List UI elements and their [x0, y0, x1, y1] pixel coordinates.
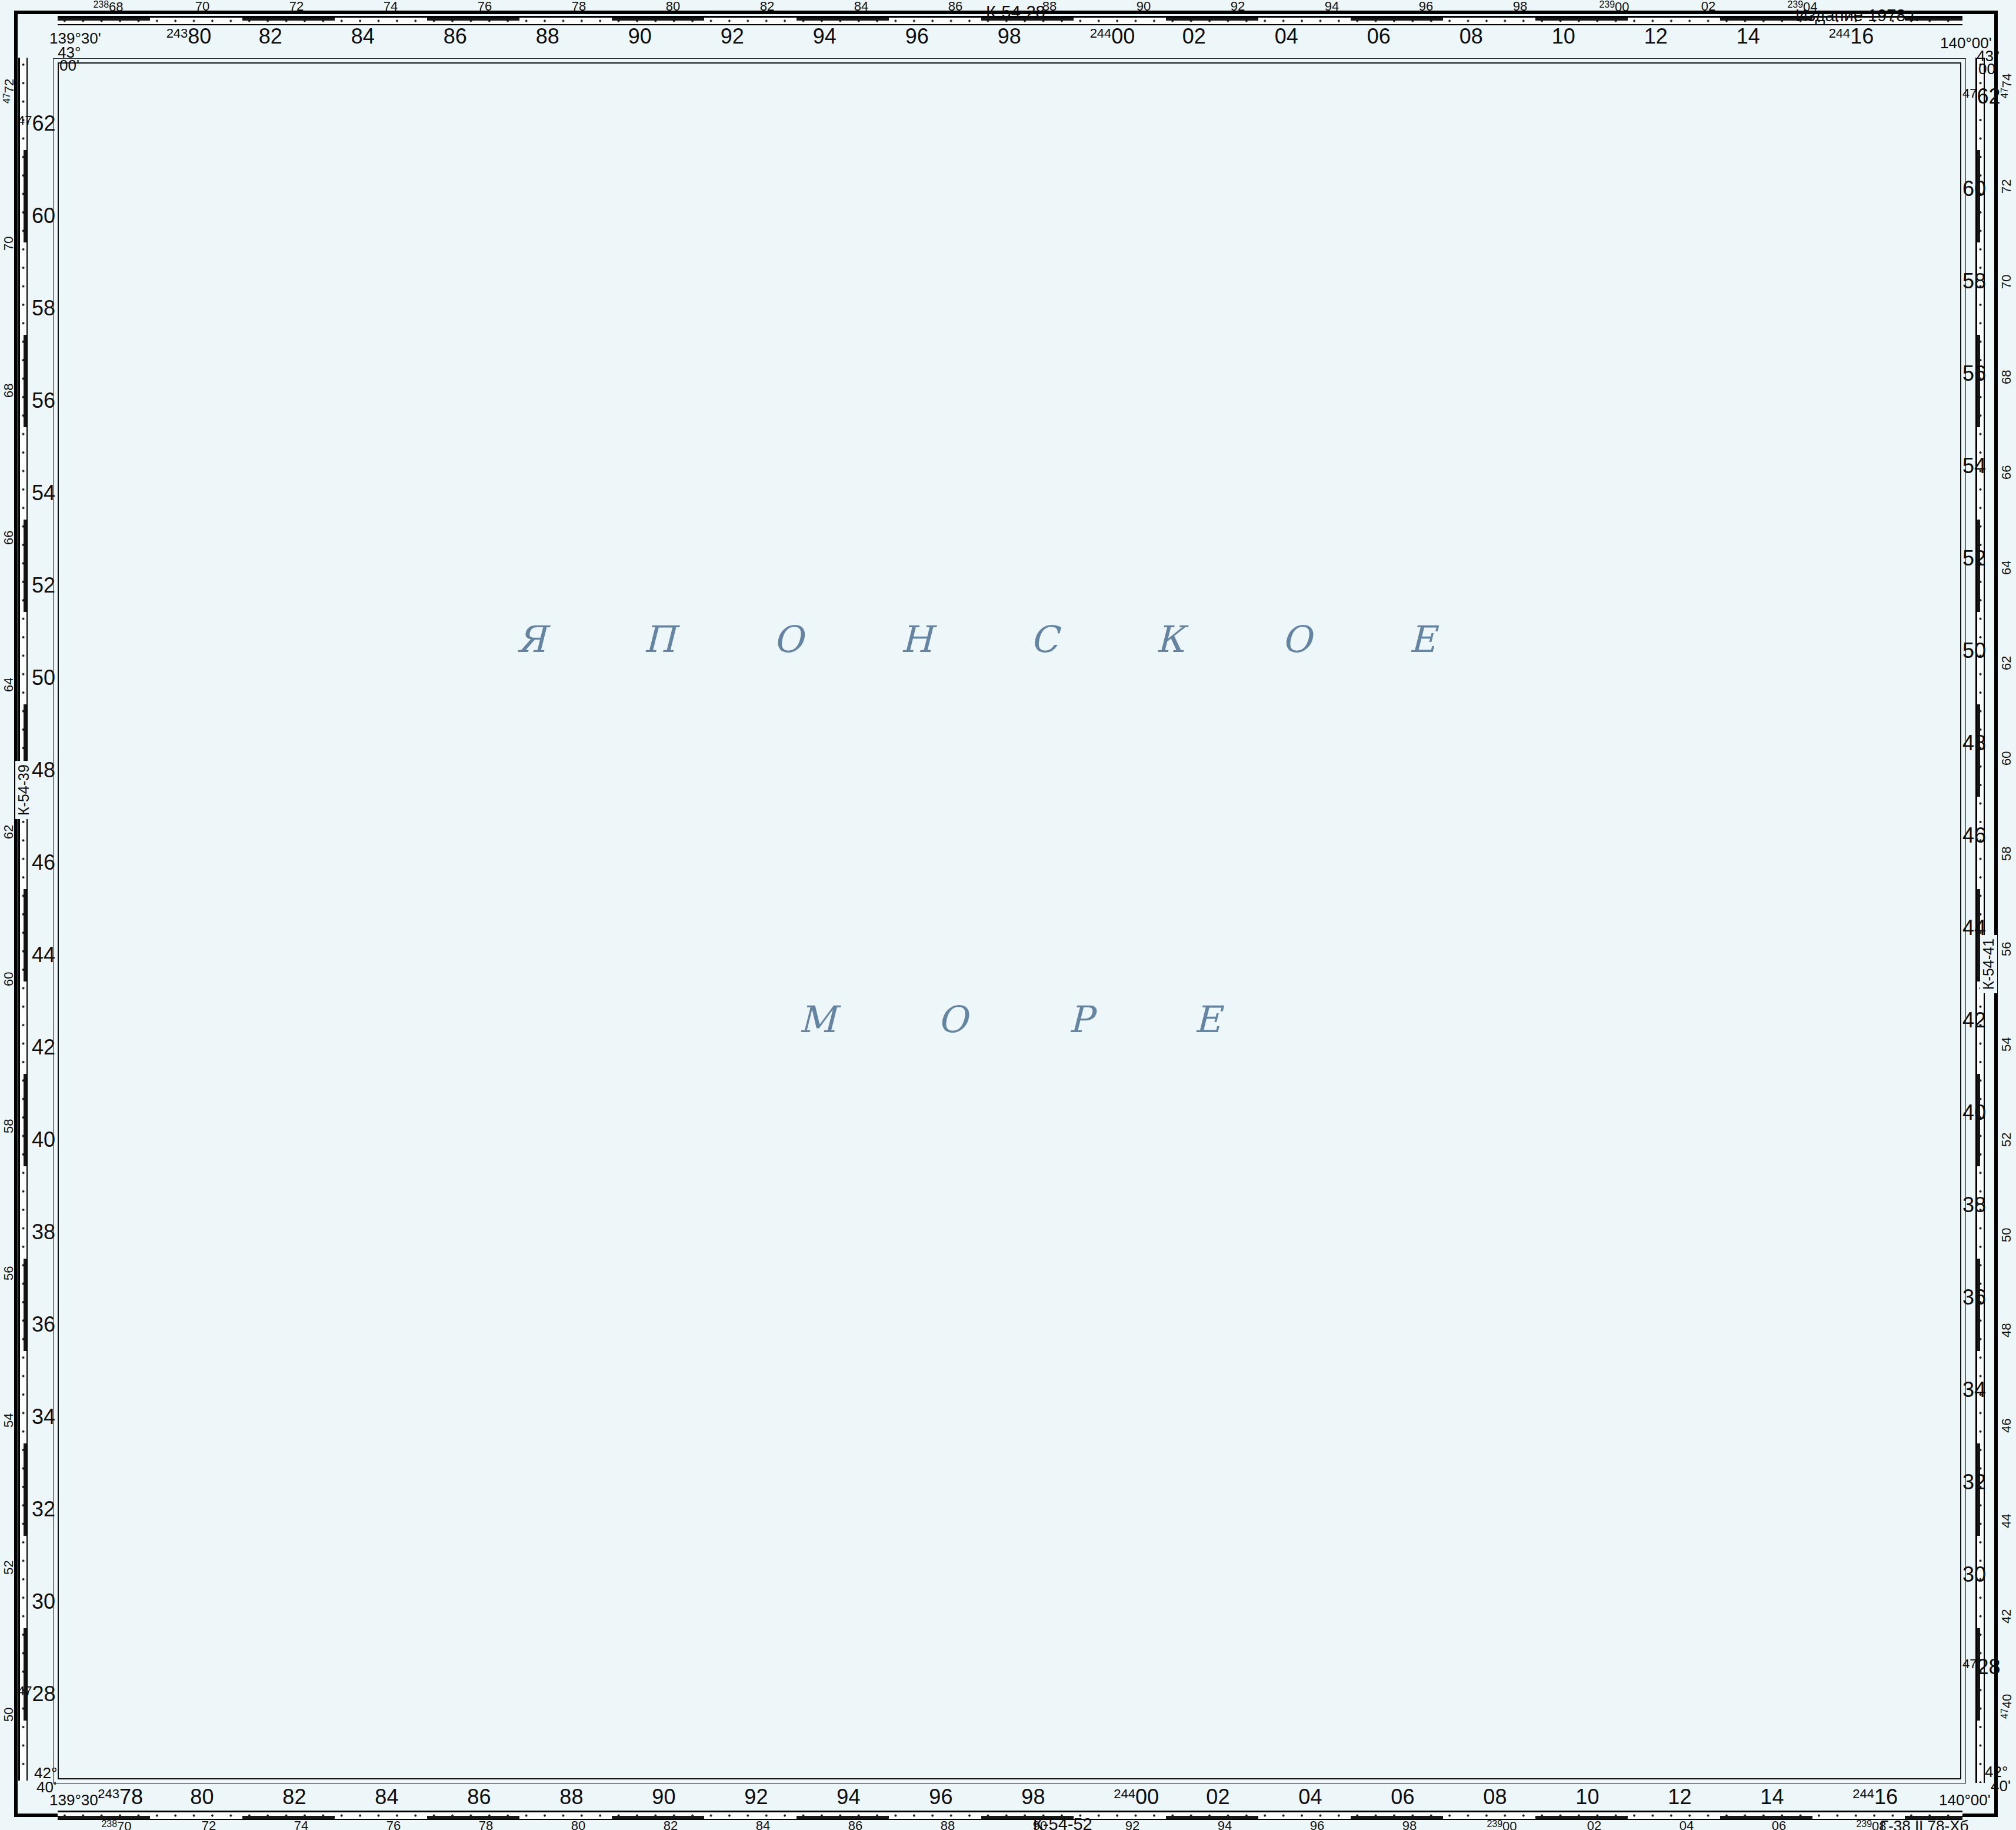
grid-label-top: 98: [998, 26, 1021, 47]
grid-label-bottom: 86: [467, 1786, 491, 1808]
outer-scale-top: 76: [478, 0, 492, 13]
grid-label-bottom: 98: [1021, 1786, 1045, 1808]
grid-label-bottom: 24400: [1114, 1786, 1159, 1808]
outer-scale-top: 70: [195, 0, 209, 13]
outer-scale-left: 50: [2, 1708, 15, 1722]
grid-label-right: 34: [1962, 1379, 1986, 1400]
outer-scale-bottom: 94: [1218, 1819, 1232, 1830]
outer-scale-left: 70: [2, 237, 15, 251]
grid-label-left: 36: [18, 1314, 55, 1335]
grid-label-left: 54: [18, 483, 55, 504]
outer-scale-top: 84: [854, 0, 868, 13]
grid-label-left: 52: [18, 575, 55, 596]
outer-scale-bottom: 02: [1587, 1819, 1601, 1830]
grid-label-bottom: 12: [1668, 1786, 1691, 1808]
grid-label-bottom: 02: [1206, 1786, 1229, 1808]
grid-label-top: 90: [628, 26, 652, 47]
outer-scale-left: 60: [2, 972, 15, 986]
grid-label-bottom: 82: [282, 1786, 306, 1808]
outer-scale-bottom: 86: [848, 1819, 862, 1830]
outer-scale-right: 68: [2000, 370, 2013, 384]
outer-scale-bottom: 88: [941, 1819, 955, 1830]
outer-scale-top: 96: [1419, 0, 1433, 13]
grid-label-right: 36: [1962, 1287, 1986, 1308]
outer-scale-right: 4740: [2000, 1694, 2014, 1719]
grid-label-right: 4728: [1962, 1656, 2001, 1678]
outer-scale-bottom: 90: [1033, 1819, 1047, 1830]
grid-label-left: 60: [18, 205, 55, 227]
topographic-map-sheet: Издание 1978 г. К-54-28 К-54-52 К-54-39 …: [0, 0, 2016, 1830]
grid-label-left: 46: [18, 852, 55, 873]
outer-scale-top: 23904: [1787, 0, 1817, 14]
grid-label-bottom: 24378: [98, 1786, 143, 1808]
grid-label-top: 86: [444, 26, 467, 47]
outer-scale-bottom: 78: [479, 1819, 493, 1830]
grid-label-bottom: 84: [375, 1786, 398, 1808]
outer-scale-right: 42: [2000, 1609, 2013, 1623]
outer-scale-left: 68: [2, 384, 15, 398]
outer-scale-left: 62: [2, 825, 15, 839]
grid-label-right: 38: [1962, 1195, 1986, 1216]
outer-scale-right: 48: [2000, 1323, 2013, 1337]
outer-scale-top: 78: [572, 0, 586, 13]
outer-scale-right: 58: [2000, 847, 2013, 861]
outer-scale-bottom: 74: [294, 1819, 308, 1830]
outer-scale-right: 66: [2000, 465, 2013, 480]
grid-label-left: 40: [18, 1129, 55, 1150]
outer-scale-top: 82: [760, 0, 774, 13]
outer-scale-left: 58: [2, 1119, 15, 1133]
outer-scale-bottom: 96: [1310, 1819, 1324, 1830]
outer-scale-top: 90: [1137, 0, 1151, 13]
outer-scale-top: 92: [1231, 0, 1245, 13]
grid-label-left: 42: [18, 1037, 55, 1058]
outer-scale-right: 70: [2000, 275, 2013, 289]
grid-label-right: 58: [1962, 271, 1986, 292]
outer-scale-bottom: 82: [664, 1819, 678, 1830]
grid-label-top: 24380: [166, 26, 212, 47]
grid-label-right: 56: [1962, 363, 1986, 384]
grid-label-bottom: 04: [1298, 1786, 1322, 1808]
outer-scale-left: 56: [2, 1266, 15, 1280]
outer-scale-right: 72: [2000, 179, 2013, 194]
outer-scale-right: 52: [2000, 1133, 2013, 1147]
outer-scale-top: 74: [384, 0, 398, 13]
outer-scale-left: 54: [2, 1413, 15, 1428]
grid-label-top: 04: [1275, 26, 1298, 47]
grid-label-bottom: 06: [1391, 1786, 1414, 1808]
grid-label-right: 46: [1962, 825, 1986, 846]
grid-label-left: 48: [18, 760, 55, 781]
grid-label-bottom: 92: [744, 1786, 768, 1808]
grid-label-top: 88: [536, 26, 559, 47]
outer-scale-top: 23868: [93, 0, 123, 14]
grid-label-right: 40: [1962, 1102, 1986, 1123]
outer-scale-top: 23900: [1599, 0, 1629, 14]
grid-label-top: 06: [1367, 26, 1391, 47]
grid-label-top: 14: [1737, 26, 1760, 47]
grid-label-right: 52: [1962, 548, 1986, 569]
outer-scale-top: 86: [948, 0, 962, 13]
grid-label-bottom: 10: [1575, 1786, 1599, 1808]
grid-label-top: 92: [721, 26, 744, 47]
grid-label-top: 02: [1182, 26, 1206, 47]
labels-layer: 2437824380808282848486868888909092929494…: [0, 0, 2016, 1830]
outer-scale-right: 50: [2000, 1228, 2013, 1242]
outer-scale-left: 64: [2, 678, 15, 692]
outer-scale-bottom: 23908: [1856, 1819, 1886, 1830]
outer-scale-bottom: 23900: [1487, 1819, 1517, 1830]
grid-label-right: 50: [1962, 640, 1986, 661]
outer-scale-bottom: 92: [1125, 1819, 1139, 1830]
grid-label-right: 30: [1962, 1564, 1986, 1585]
grid-label-top: 94: [813, 26, 837, 47]
grid-label-top: 84: [351, 26, 375, 47]
grid-label-top: 10: [1552, 26, 1575, 47]
grid-label-left: 44: [18, 944, 55, 966]
grid-label-right: 42: [1962, 1010, 1986, 1031]
grid-label-left: 4762: [18, 113, 55, 134]
outer-scale-top: 72: [289, 0, 304, 13]
grid-label-top: 08: [1459, 26, 1483, 47]
grid-label-top: 24416: [1829, 26, 1874, 47]
outer-scale-bottom: 04: [1680, 1819, 1694, 1830]
grid-label-top: 12: [1644, 26, 1668, 47]
outer-scale-right: 56: [2000, 942, 2013, 956]
outer-scale-right: 4774: [2000, 74, 2014, 98]
outer-scale-bottom: 84: [756, 1819, 770, 1830]
grid-label-left: 32: [18, 1499, 55, 1520]
grid-label-top: 82: [259, 26, 282, 47]
grid-label-bottom: 90: [652, 1786, 675, 1808]
grid-label-bottom: 96: [929, 1786, 952, 1808]
grid-label-bottom: 88: [559, 1786, 583, 1808]
grid-label-left: 30: [18, 1591, 55, 1612]
grid-label-bottom: 80: [190, 1786, 214, 1808]
outer-scale-bottom: 23870: [101, 1819, 131, 1830]
outer-scale-top: 88: [1042, 0, 1057, 13]
outer-scale-right: 54: [2000, 1037, 2013, 1052]
outer-scale-bottom: 06: [1772, 1819, 1786, 1830]
outer-scale-top: 02: [1701, 0, 1715, 13]
grid-label-right: 44: [1962, 917, 1986, 939]
outer-scale-right: 46: [2000, 1419, 2013, 1433]
outer-scale-right: 62: [2000, 656, 2013, 670]
outer-scale-bottom: 80: [571, 1819, 585, 1830]
outer-scale-left: 66: [2, 531, 15, 545]
outer-scale-bottom: 72: [202, 1819, 216, 1830]
outer-scale-bottom: 98: [1402, 1819, 1417, 1830]
grid-label-left: 58: [18, 298, 55, 319]
grid-label-right: 48: [1962, 733, 1986, 754]
outer-scale-top: 98: [1513, 0, 1527, 13]
grid-label-bottom: 14: [1760, 1786, 1784, 1808]
grid-label-right: 32: [1962, 1472, 1986, 1493]
grid-label-right: 54: [1962, 455, 1986, 477]
outer-scale-right: 44: [2000, 1514, 2013, 1528]
grid-label-bottom: 24416: [1852, 1786, 1898, 1808]
outer-scale-top: 94: [1325, 0, 1339, 13]
outer-scale-left: 52: [2, 1561, 15, 1575]
outer-scale-right: 60: [2000, 751, 2013, 766]
outer-scale-top: 80: [666, 0, 680, 13]
outer-scale-left: 4772: [2, 79, 16, 104]
outer-scale-bottom: 76: [386, 1819, 401, 1830]
outer-scale-right: 64: [2000, 561, 2013, 575]
grid-label-top: 96: [905, 26, 929, 47]
grid-label-right: 60: [1962, 178, 1986, 199]
grid-label-bottom: 08: [1483, 1786, 1507, 1808]
grid-label-left: 34: [18, 1406, 55, 1428]
grid-label-left: 4728: [18, 1683, 55, 1705]
grid-label-left: 50: [18, 667, 55, 688]
grid-label-top: 24400: [1090, 26, 1135, 47]
grid-label-bottom: 94: [837, 1786, 860, 1808]
grid-label-left: 56: [18, 390, 55, 411]
grid-label-left: 38: [18, 1222, 55, 1243]
grid-label-right: 4762: [1962, 86, 2001, 107]
